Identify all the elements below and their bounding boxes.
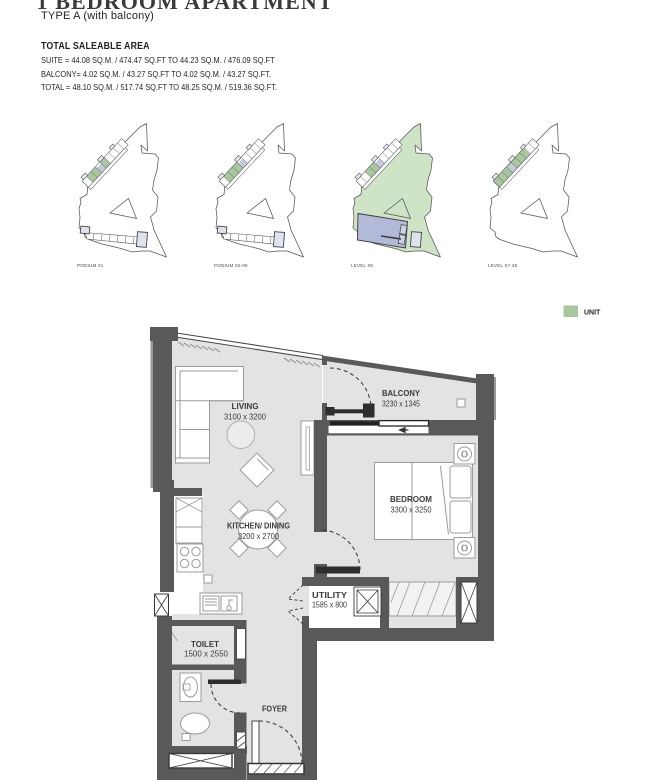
- svg-text:BALCONY: BALCONY: [382, 388, 420, 398]
- svg-text:UTILITY: UTILITY: [312, 590, 347, 600]
- svg-text:1585 x 800: 1585 x 800: [312, 601, 347, 610]
- svg-text:KITCHEN/ DINING: KITCHEN/ DINING: [227, 521, 290, 531]
- svg-text:UNIT: UNIT: [584, 310, 601, 317]
- svg-text:FOYER: FOYER: [262, 704, 287, 714]
- svg-text:3230 x 1345: 3230 x 1345: [382, 400, 420, 409]
- svg-text:PODIUM 02-05: PODIUM 02-05: [214, 263, 248, 268]
- svg-text:TOILET: TOILET: [191, 639, 220, 649]
- svg-text:3200 x 2700: 3200 x 2700: [238, 532, 279, 541]
- svg-text:3100 x 3200: 3100 x 3200: [224, 413, 266, 422]
- svg-text:BEDROOM: BEDROOM: [390, 494, 432, 504]
- svg-text:LEVEL 06: LEVEL 06: [351, 263, 373, 268]
- svg-text:3300 x 3250: 3300 x 3250: [391, 506, 432, 515]
- svg-text:LIVING: LIVING: [232, 401, 259, 411]
- svg-text:1500 x 2550: 1500 x 2550: [184, 650, 228, 659]
- svg-text:PODIUM 01: PODIUM 01: [77, 263, 104, 268]
- svg-text:LEVEL 07-35: LEVEL 07-35: [488, 263, 518, 268]
